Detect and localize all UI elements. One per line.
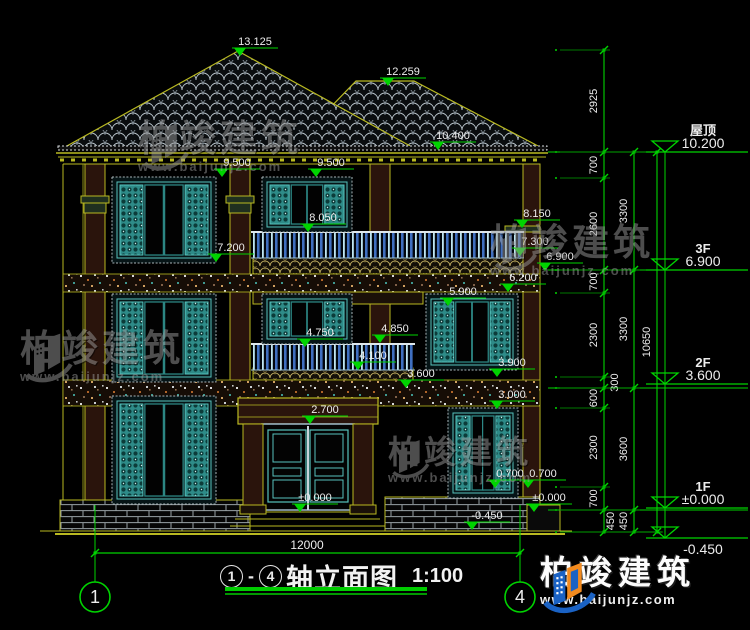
elevation-marker-triangle [304, 416, 316, 424]
dim-grip [519, 552, 522, 555]
elevation-marker-value: -0.450 [471, 510, 502, 522]
elevation-marker-value: 0.700 [529, 468, 557, 480]
elevation-marker-triangle [489, 480, 501, 488]
title-axis-start: 1 [220, 565, 243, 588]
elevation-marker-triangle [491, 369, 503, 377]
axis-bubble-label: 4 [515, 587, 525, 607]
dim-chain-label: 450 [605, 512, 617, 530]
elevation-marker-value: 0.700 [496, 468, 524, 480]
dim-chain-label: 2925 [588, 89, 600, 113]
elevation-marker-triangle [210, 254, 222, 262]
dim-extension-dot [555, 509, 557, 511]
elevation-marker-triangle [302, 224, 314, 232]
company-logo: 柏竣建筑 www.baijunjz.com [540, 556, 696, 606]
elevation-marker-value: 8.150 [523, 208, 551, 220]
dim-chain-label: 700 [588, 272, 600, 290]
elevation-marker-triangle [216, 169, 228, 177]
elevation-marker-value: 7.200 [217, 242, 245, 254]
level-marker-triangle [652, 141, 678, 152]
elevation-marker-value: 9.500 [317, 157, 345, 169]
dim-chain-label: 3300 [618, 317, 630, 341]
dim-extension-dot [555, 177, 557, 179]
elevation-marker-triangle [522, 480, 534, 488]
title-underline [225, 593, 427, 595]
elevation-marker-value: 13.125 [238, 36, 272, 48]
elevation-marker-triangle [516, 220, 528, 228]
elevation-marker-value: 3.000 [498, 389, 526, 401]
elevation-marker-triangle [294, 504, 306, 512]
elevation-marker-triangle [374, 335, 386, 343]
elevation-marker-triangle [432, 142, 444, 150]
elevation-marker-value: 9.500 [223, 157, 251, 169]
elevation-marker-triangle [234, 48, 246, 56]
dim-extension-dot [555, 531, 557, 533]
title-dash: - [248, 566, 254, 587]
dim-extension-dot [555, 387, 557, 389]
title-axis-end: 4 [259, 565, 282, 588]
elevation-marker-value: 2.700 [311, 404, 339, 416]
dim-chain-label: 700 [588, 489, 600, 507]
dim-chain-label: 450 [618, 512, 630, 530]
title-underline [225, 587, 427, 591]
level-name: 1F [695, 479, 710, 494]
dim-chain-label: 700 [588, 156, 600, 174]
level-name: 2F [695, 355, 710, 370]
elevation-marker-value: 4.850 [381, 323, 409, 335]
elevation-marker-value: ±0.000 [532, 492, 566, 504]
elevation-marker-triangle [514, 248, 526, 256]
elevation-marker-value: ±0.000 [298, 492, 332, 504]
elevation-marker-triangle [400, 380, 412, 388]
dim-extension-dot [555, 292, 557, 294]
elevation-marker-triangle [528, 504, 540, 512]
elevation-marker-value: 7.300 [521, 236, 549, 248]
elevation-marker-value: 6.200 [509, 272, 537, 284]
dim-chain-label: 3300 [618, 199, 630, 223]
dim-grip [94, 552, 97, 555]
dim-chain-label: 10650 [641, 327, 653, 358]
elevation-marker-triangle [310, 169, 322, 177]
dimension-annotations: 1412000292570026007002300300600230070045… [0, 0, 750, 630]
elevation-marker-value: 3.900 [498, 357, 526, 369]
level-name: 3F [695, 241, 710, 256]
elevation-marker-triangle [502, 284, 514, 292]
level-name: 屋顶 [690, 123, 716, 138]
elevation-marker-triangle [382, 78, 394, 86]
dim-extension-dot [555, 49, 557, 51]
elevation-marker-value: 6.900 [546, 251, 574, 263]
dim-chain-label: 3600 [618, 437, 630, 461]
elevation-marker-triangle [352, 362, 364, 370]
bottom-dim-text: 12000 [290, 538, 324, 552]
elevation-marker-triangle [299, 339, 311, 347]
dim-extension-dot [555, 407, 557, 409]
cad-elevation-drawing: 1412000292570026007002300300600230070045… [0, 0, 750, 630]
title-scale: 1:100 [412, 565, 463, 588]
elevation-marker-value: 5.900 [449, 286, 477, 298]
elevation-marker-triangle [442, 298, 454, 306]
elevation-marker-value: 12.259 [386, 66, 420, 78]
brand-building-icon [540, 556, 598, 620]
dim-chain-label: 300 [609, 373, 621, 391]
elevation-marker-value: 10.400 [436, 130, 470, 142]
elevation-marker-value: 8.050 [309, 212, 337, 224]
elevation-marker-value: 4.750 [306, 327, 334, 339]
dim-chain-label: 2300 [588, 323, 600, 347]
dim-extension-dot [555, 269, 557, 271]
dim-extension-dot [555, 486, 557, 488]
elevation-marker-triangle [491, 401, 503, 409]
dim-chain-label: 2300 [588, 435, 600, 459]
elevation-marker-triangle [466, 522, 478, 530]
axis-bubble-label: 1 [90, 587, 100, 607]
elevation-marker-value: 3.600 [407, 368, 435, 380]
dim-chain-label: 2600 [588, 212, 600, 236]
dim-extension-dot [555, 151, 557, 153]
elevation-marker-value: 4.100 [359, 350, 387, 362]
dim-chain-label: 600 [588, 389, 600, 407]
dim-extension-dot [555, 376, 557, 378]
